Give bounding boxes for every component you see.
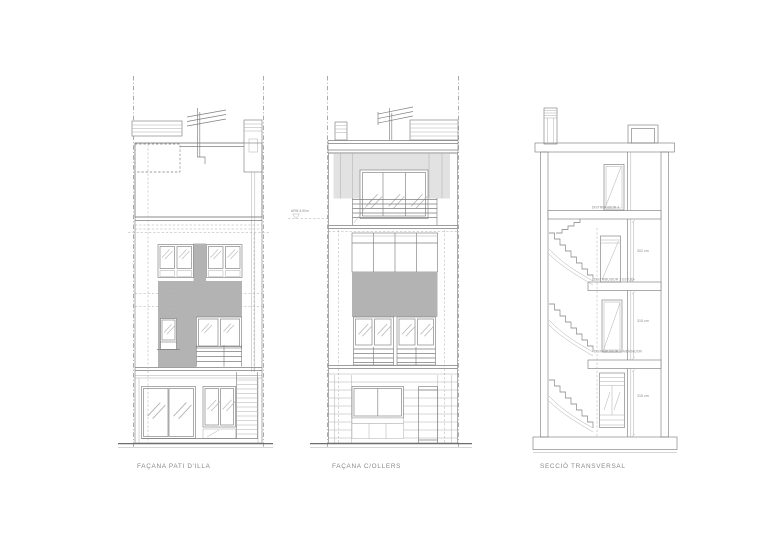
ground-floor-cabinet (600, 373, 625, 428)
antenna-icon (378, 107, 413, 140)
section-walls (541, 152, 669, 437)
room-label-2: DISTRIBUIDOR 2 (594, 350, 621, 354)
drawing-sheet: FAÇANA PATI D'ILLA (0, 0, 768, 554)
antenna-icon (187, 108, 226, 164)
staircase (549, 219, 593, 432)
dim-label-3: 302 cm (637, 249, 649, 253)
gray-facade-panel (352, 272, 438, 317)
floor-band-roof (128, 217, 269, 233)
top-floor-cladding (135, 143, 262, 217)
roof-parapet-box (410, 120, 458, 140)
room-label-top: DISTRIBUIDOR 4 (592, 206, 619, 210)
door-second-floor (602, 300, 622, 352)
facade-pati-dilla-drawing: FAÇANA PATI D'ILLA (118, 76, 273, 470)
ground-line (310, 444, 472, 448)
floor-slabs (548, 211, 661, 369)
ground-floor-grille-door (419, 387, 438, 444)
room-label-2b: MENJADOR (623, 350, 642, 354)
section-chimney (544, 108, 557, 144)
roof-band (328, 141, 458, 154)
door-third-floor (601, 236, 621, 282)
roof-parapet-box (132, 121, 182, 136)
floor-band-second (329, 226, 458, 232)
svg-text:ARM 8,50m: ARM 8,50m (291, 209, 309, 213)
facade-ollers-title: FAÇANA C/OLLERS (332, 463, 401, 470)
drawing-canvas: FAÇANA PATI D'ILLA (0, 0, 768, 554)
floor-band-first (135, 368, 262, 379)
second-floor-window-left (158, 245, 194, 278)
ground-floor (139, 378, 258, 443)
interior-partition (628, 152, 631, 437)
seccio-transversal-drawing: DISTRIBUIDOR 4 DISTRIBUIDOR 3 ESTUDI DIS… (533, 108, 677, 470)
height-annotation: ARM 8,50m (288, 209, 329, 219)
exterior-ladder (237, 372, 258, 439)
roof-slab (535, 143, 675, 152)
facade-pati-title: FAÇANA PATI D'ILLA (137, 463, 211, 470)
chimney (244, 120, 262, 172)
section-title: SECCIÓ TRANSVERSAL (540, 461, 626, 470)
dim-label-2: 315 cm (637, 319, 649, 323)
louvered-shutters (352, 233, 438, 272)
ground-floor-louver-window (352, 387, 404, 439)
third-floor-small-window (157, 319, 180, 350)
facade-ollers-drawing: ARM 8,50m (288, 76, 472, 470)
dim-label-1: 315 cm (637, 394, 649, 398)
chimney-left (335, 122, 347, 140)
ground-line (118, 444, 273, 448)
roof-skylight-box (628, 125, 658, 143)
third-floor-balcony-window (197, 317, 242, 367)
first-floor-window-left (354, 317, 394, 365)
second-floor-window-right (207, 245, 243, 278)
first-floor-window-right (397, 317, 436, 365)
foundation-slab (533, 437, 677, 453)
floor-band-first (329, 366, 458, 375)
door-top-floor (604, 165, 624, 211)
room-label-3b: ESTUDI (622, 278, 634, 282)
dimension-lines (632, 220, 635, 437)
room-label-3: DISTRIBUIDOR 3 (594, 278, 621, 282)
vent-pipe (252, 172, 255, 372)
